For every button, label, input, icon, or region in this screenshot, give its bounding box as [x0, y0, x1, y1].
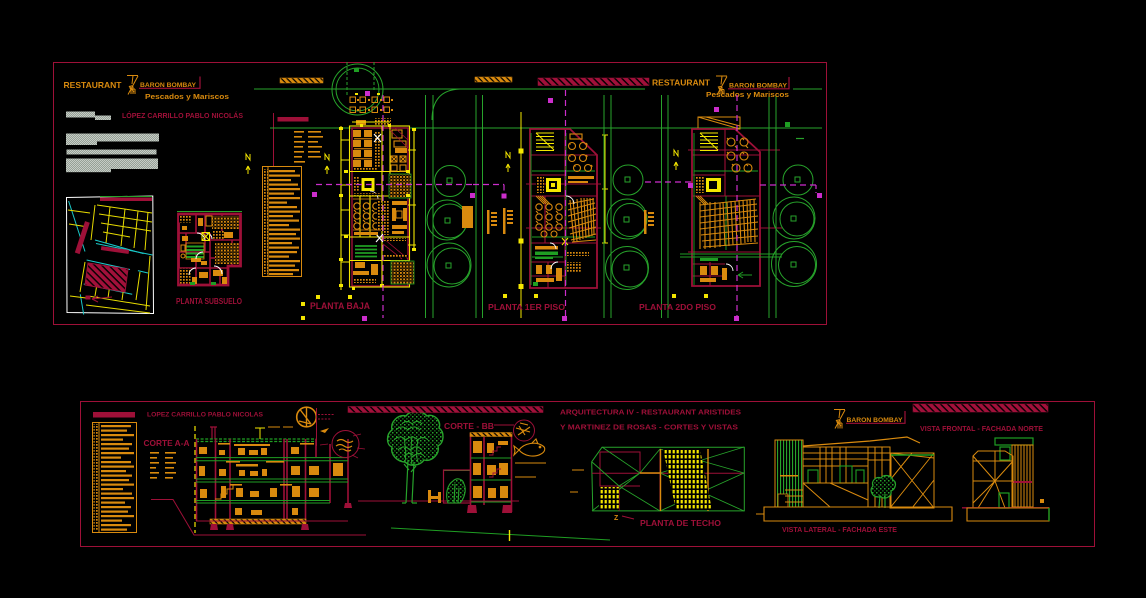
svg-text:VISTA FRONTAL - FACHADA NORTE: VISTA FRONTAL - FACHADA NORTE	[920, 426, 1043, 433]
svg-text:BARON BOMBAY: BARON BOMBAY	[729, 83, 788, 90]
svg-text:Pescados y Mariscos: Pescados y Mariscos	[145, 92, 229, 101]
svg-text:BARON BOMBAY: BARON BOMBAY	[847, 417, 904, 424]
svg-text:CORTE - BB: CORTE - BB	[444, 422, 494, 431]
svg-text:Z: Z	[614, 515, 619, 522]
svg-text:LÓPEZ CARRILLO PABLO NICOLÁS: LÓPEZ CARRILLO PABLO NICOLÁS	[122, 111, 243, 120]
svg-text:Y MARTINEZ DE ROSAS - CORTES Y: Y MARTINEZ DE ROSAS - CORTES Y VISTAS	[560, 423, 738, 432]
svg-text:ARQUITECTURA IV - RESTAURANT A: ARQUITECTURA IV - RESTAURANT ARISTIDES	[560, 408, 741, 417]
svg-text:CORTE A-A: CORTE A-A	[144, 438, 190, 448]
svg-text:Pescados y Mariscos: Pescados y Mariscos	[706, 90, 789, 99]
svg-text:PLANTA DE TECHO: PLANTA DE TECHO	[640, 518, 721, 528]
svg-text:BARON BOMBAY: BARON BOMBAY	[140, 82, 197, 89]
svg-text:PLANTA 1ER PISO: PLANTA 1ER PISO	[488, 302, 565, 312]
svg-text:PLANTA SUBSUELO: PLANTA SUBSUELO	[176, 297, 242, 306]
svg-text:LOPEZ CARRILLO PABLO NICOLAS: LOPEZ CARRILLO PABLO NICOLAS	[147, 412, 263, 419]
svg-text:RESTAURANT: RESTAURANT	[652, 78, 711, 88]
svg-text:PLANTA 2DO PISO: PLANTA 2DO PISO	[639, 302, 716, 312]
svg-text:RESTAURANT: RESTAURANT	[64, 80, 123, 90]
svg-text:VISTA LATERAL - FACHADA ESTE: VISTA LATERAL - FACHADA ESTE	[782, 527, 897, 534]
svg-text:PLANTA BAJA: PLANTA BAJA	[310, 301, 370, 311]
